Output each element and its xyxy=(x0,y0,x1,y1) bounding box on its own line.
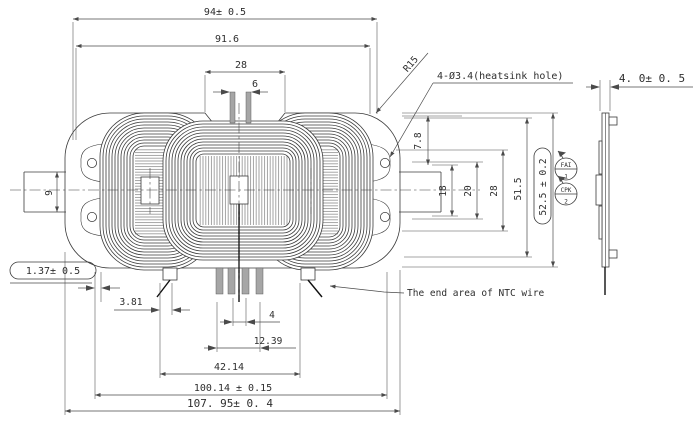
dim-pin-gap: 4 xyxy=(269,310,275,321)
coil-center xyxy=(163,121,323,260)
dim-hole-offset: 7.8 xyxy=(413,132,424,149)
right-stub xyxy=(399,172,441,212)
side-view xyxy=(596,113,617,295)
side-coil-bump xyxy=(596,175,602,205)
dim-overall-width: 94± 0.5 xyxy=(204,7,246,18)
dim-stub-width: 9 xyxy=(44,190,55,196)
drawing-sheet: 94± 0.5 91.6 28 6 R15 4-Ø3.4(heatsink ho… xyxy=(0,0,696,425)
dim-edge-gap: 1.37± 0.5 xyxy=(26,266,80,277)
balloon-cpk-label: CPK xyxy=(561,187,572,194)
dim-pin-spacing: 6 xyxy=(252,79,258,90)
ntc-leader xyxy=(330,286,404,293)
side-bottom-tab xyxy=(609,250,617,258)
dim-core-28: 28 xyxy=(489,185,500,197)
dim-thickness: 4. 0± 0. 5 xyxy=(619,72,685,85)
side-top-tab xyxy=(609,117,617,125)
ntc-note: The end area of NTC wire xyxy=(407,288,545,299)
dim-inner-width: 91.6 xyxy=(215,34,239,45)
dim-notch-width: 28 xyxy=(235,60,247,71)
balloon-fai-number: 1 xyxy=(564,174,568,181)
drawing-canvas: 94± 0.5 91.6 28 6 R15 4-Ø3.4(heatsink ho… xyxy=(0,0,696,425)
dim-tab-span: 42.14 xyxy=(214,362,244,373)
dim-inner-height: 51.5 xyxy=(513,178,524,201)
dim-overall-height: 52.5 ± 0.2 xyxy=(538,158,549,215)
balloon-cpk-number: 2 xyxy=(564,199,568,206)
dim-core-20: 20 xyxy=(463,185,474,197)
dim-mount-span: 100.14 ± 0.15 xyxy=(194,383,272,394)
top-pins xyxy=(230,92,251,123)
dim-tab-offset: 3.81 xyxy=(120,297,143,308)
heatsink-leader xyxy=(390,83,433,157)
balloon-fai-label: FAI xyxy=(561,162,572,169)
dim-total-width: 107. 95± 0. 4 xyxy=(187,397,273,410)
heatsink-hole-label: 4-Ø3.4(heatsink hole) xyxy=(437,70,563,82)
dim-core-18: 18 xyxy=(438,185,449,197)
dim-pin-span: 12.39 xyxy=(254,336,283,347)
radius-label: R15 xyxy=(401,54,421,74)
